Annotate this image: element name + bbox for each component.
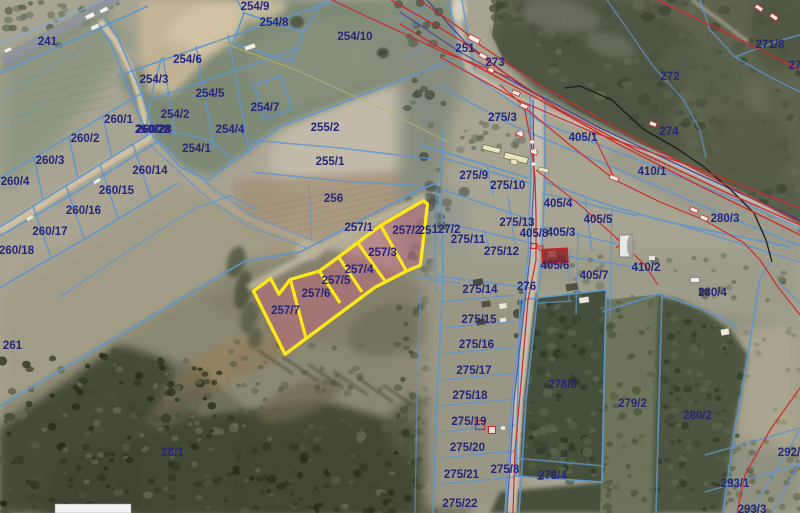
svg-text:254/2: 254/2: [161, 109, 190, 121]
svg-text:251: 251: [455, 43, 475, 55]
svg-text:275/22: 275/22: [442, 498, 477, 510]
svg-text:27: 27: [789, 60, 800, 72]
svg-text:260/18: 260/18: [0, 245, 35, 257]
svg-text:405/5: 405/5: [584, 214, 613, 226]
svg-text:260/16: 260/16: [66, 205, 101, 217]
svg-text:275/16: 275/16: [459, 339, 494, 351]
svg-text:410/1: 410/1: [638, 166, 667, 178]
svg-text:254/4: 254/4: [216, 124, 245, 136]
svg-text:410/2: 410/2: [632, 262, 661, 274]
svg-text:405/3: 405/3: [547, 227, 576, 239]
svg-text:254/8: 254/8: [260, 17, 289, 29]
svg-text:260/17: 260/17: [32, 226, 67, 238]
svg-text:254/6: 254/6: [173, 54, 202, 66]
svg-text:275/12: 275/12: [484, 246, 519, 258]
svg-text:28/1: 28/1: [161, 447, 184, 459]
svg-text:241: 241: [38, 36, 58, 48]
svg-text:280/2: 280/2: [683, 410, 712, 422]
svg-text:260/28: 260/28: [137, 124, 173, 136]
svg-text:25: 25: [419, 225, 432, 237]
svg-text:275/17: 275/17: [456, 365, 491, 377]
svg-text:273: 273: [485, 57, 504, 69]
svg-text:280/3: 280/3: [711, 213, 740, 225]
svg-text:257/1: 257/1: [344, 222, 373, 234]
svg-text:257/2: 257/2: [392, 225, 421, 237]
svg-text:256: 256: [324, 193, 343, 205]
svg-text:275/21: 275/21: [444, 469, 480, 481]
svg-text:405/6: 405/6: [541, 260, 570, 272]
svg-text:254/9: 254/9: [241, 1, 270, 13]
svg-text:275/11: 275/11: [451, 234, 486, 246]
svg-text:275/14: 275/14: [462, 284, 498, 296]
svg-text:260/1: 260/1: [104, 114, 133, 126]
svg-text:257/5: 257/5: [322, 275, 351, 287]
svg-text:260/2: 260/2: [71, 133, 100, 145]
svg-text:274: 274: [659, 126, 679, 138]
svg-text:254/7: 254/7: [251, 102, 280, 114]
svg-text:254/1: 254/1: [182, 143, 211, 155]
svg-text:260/3: 260/3: [36, 155, 65, 167]
svg-text:254/5: 254/5: [196, 88, 225, 100]
svg-text:271/8: 271/8: [756, 39, 785, 51]
svg-text:257/3: 257/3: [368, 247, 397, 259]
svg-text:275/10: 275/10: [490, 180, 525, 192]
svg-text:257/4: 257/4: [345, 264, 374, 276]
svg-text:276: 276: [517, 281, 536, 293]
svg-text:254/10: 254/10: [337, 31, 372, 43]
svg-text:260/15: 260/15: [99, 185, 135, 197]
svg-text:254/3: 254/3: [140, 74, 169, 86]
svg-text:260/14: 260/14: [132, 165, 168, 177]
svg-text:279/2: 279/2: [618, 398, 647, 410]
svg-text:257/6: 257/6: [302, 288, 331, 300]
svg-text:405/7: 405/7: [580, 270, 609, 282]
svg-text:293/1: 293/1: [721, 478, 750, 490]
svg-text:405/1: 405/1: [569, 132, 598, 144]
svg-text:275/9: 275/9: [459, 170, 488, 182]
svg-text:275/20: 275/20: [450, 442, 485, 454]
svg-text:275/8: 275/8: [491, 464, 520, 476]
svg-text:272: 272: [660, 71, 679, 83]
svg-text:278/3: 278/3: [548, 379, 577, 391]
svg-text:275/19: 275/19: [451, 416, 486, 428]
svg-text:257/7: 257/7: [271, 305, 300, 317]
svg-text:292/: 292/: [778, 447, 800, 459]
svg-text:260/4: 260/4: [1, 176, 30, 188]
svg-text:261: 261: [3, 340, 23, 352]
svg-text:405/4: 405/4: [544, 198, 573, 210]
svg-text:255/2: 255/2: [311, 122, 340, 134]
svg-text:275/18: 275/18: [452, 390, 488, 402]
svg-text:280/4: 280/4: [698, 287, 727, 299]
svg-text:293/3: 293/3: [738, 504, 767, 513]
svg-text:275/15: 275/15: [461, 314, 497, 326]
svg-text:278/4: 278/4: [538, 470, 567, 482]
svg-text:405/8: 405/8: [520, 228, 549, 240]
svg-text:275/3: 275/3: [488, 112, 517, 124]
svg-text:255/1: 255/1: [316, 156, 345, 168]
